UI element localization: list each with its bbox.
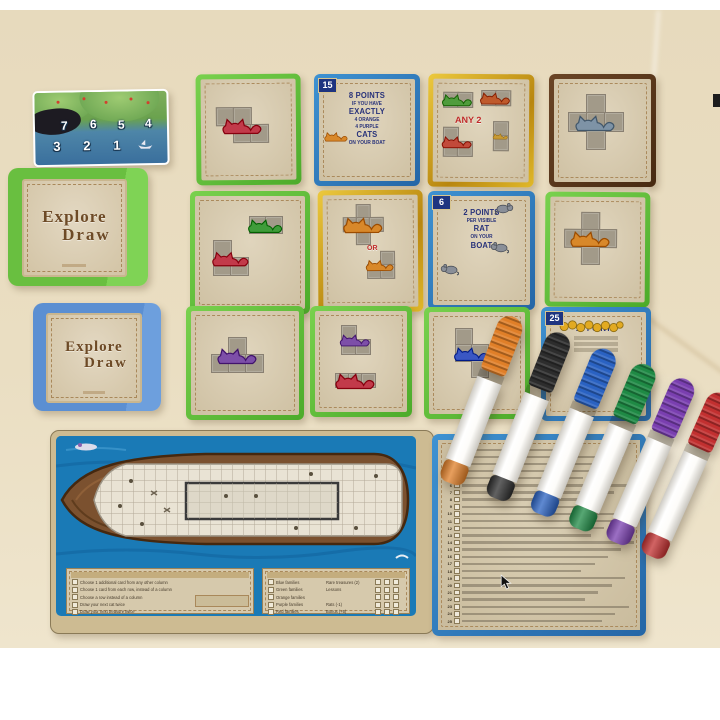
card-keyword: OR bbox=[367, 245, 378, 252]
island-scene: 7 6 5 4 3 2 1 bbox=[34, 91, 167, 165]
cropped-edge-mark bbox=[713, 94, 720, 107]
card-green-domino-red-l bbox=[190, 191, 310, 314]
cat-icon bbox=[364, 254, 395, 274]
photo-background: 7 6 5 4 3 2 1 Explore Draw Explore Draw … bbox=[0, 10, 720, 648]
lesson-row: 20 bbox=[444, 583, 634, 588]
box-title-line1: Explore bbox=[48, 339, 140, 356]
scoring-panel: Blue familiesRare treasures (2)Green fam… bbox=[262, 568, 410, 614]
rat-icon bbox=[489, 240, 509, 254]
card-number: 6 bbox=[432, 195, 451, 210]
coins-icon bbox=[558, 319, 624, 334]
box-label: Explore Draw bbox=[22, 179, 127, 277]
rat-icon bbox=[495, 201, 515, 215]
scoring-row: Purple familiesRats (-1) bbox=[268, 602, 404, 608]
card-number: 25 bbox=[545, 311, 564, 326]
action-row: Choose 1 additional card from any other … bbox=[72, 579, 248, 585]
water-area: Choose 1 additional card from any other … bbox=[56, 436, 416, 616]
day-tracker-card: 7 6 5 4 3 2 1 bbox=[32, 89, 169, 167]
lesson-row: 14 bbox=[444, 540, 634, 545]
scoring-row: Orange families bbox=[268, 594, 404, 600]
card-purple-t bbox=[186, 306, 304, 420]
lesson-row: 11 bbox=[444, 518, 634, 523]
cat-icon bbox=[219, 110, 263, 139]
panel-header bbox=[71, 572, 249, 578]
box-subtitle-mark bbox=[62, 264, 86, 267]
actions-panel: Choose 1 additional card from any other … bbox=[66, 568, 254, 614]
cat-icon bbox=[478, 86, 512, 108]
cat-icon bbox=[492, 130, 509, 141]
lesson-row: 21 bbox=[444, 590, 634, 595]
lesson-row: 23 bbox=[444, 604, 634, 609]
small-boat-icon bbox=[137, 139, 153, 149]
scoring-row: Blue familiesRare treasures (2) bbox=[268, 579, 404, 585]
card-plus-grey bbox=[549, 74, 656, 187]
explore-draw-box-green: Explore Draw bbox=[8, 168, 148, 286]
explore-draw-box-blue: Explore Draw bbox=[33, 303, 161, 411]
mouse-cursor bbox=[500, 574, 512, 590]
lesson-row: 22 bbox=[444, 597, 634, 602]
cat-icon bbox=[338, 328, 372, 350]
day-number: 6 bbox=[90, 117, 97, 131]
lesson-row: 15 bbox=[444, 547, 634, 552]
panel-note bbox=[195, 595, 249, 607]
box-title-line2: Draw bbox=[48, 355, 152, 372]
day-number: 4 bbox=[145, 116, 152, 130]
ship-illustration bbox=[56, 436, 416, 566]
cat-icon bbox=[215, 340, 259, 368]
day-number: 2 bbox=[83, 138, 90, 153]
card-keyword: ANY 2 bbox=[455, 115, 481, 125]
scoring-row: Red familiesBonus (+5) bbox=[268, 609, 404, 615]
lesson-row: 19 bbox=[444, 576, 634, 581]
box-label: Explore Draw bbox=[46, 313, 142, 403]
lesson-row: 17 bbox=[444, 561, 634, 566]
card-number: 15 bbox=[318, 78, 337, 93]
rat-icon bbox=[439, 262, 459, 276]
lesson-row: 16 bbox=[444, 554, 634, 559]
scoring-row: Green familiesLessons bbox=[268, 587, 404, 593]
card-plus-orange bbox=[545, 192, 651, 308]
cat-icon bbox=[246, 212, 284, 237]
day-number: 5 bbox=[118, 118, 125, 132]
cat-icon bbox=[340, 209, 384, 237]
card-15: 158 POINTSIF YOU HAVEEXACTLY4 ORANGE4 PU… bbox=[314, 74, 420, 186]
lesson-row: 24 bbox=[444, 611, 634, 616]
lesson-row: 18 bbox=[444, 568, 634, 573]
cat-icon bbox=[567, 223, 611, 251]
day-number: 1 bbox=[113, 138, 120, 153]
action-row: Choose 1 card from each row, instead of … bbox=[72, 587, 248, 593]
cat-icon bbox=[440, 130, 474, 152]
cat-icon bbox=[323, 127, 349, 144]
card-any2: ANY 2 bbox=[428, 74, 535, 188]
day-number: 3 bbox=[53, 139, 60, 154]
box-title-line2: Draw bbox=[24, 225, 137, 245]
box-subtitle-mark bbox=[83, 391, 105, 394]
card-6-rats: 62 POINTSPER VISIBLERATON YOURBOAT bbox=[428, 191, 535, 310]
card-red-z bbox=[196, 74, 302, 186]
lesson-row: 25 bbox=[444, 618, 634, 623]
action-row: Draw your next treasure twice bbox=[72, 609, 248, 615]
cat-icon bbox=[333, 365, 377, 393]
day-number: 7 bbox=[61, 119, 68, 133]
card-text: 2 POINTSPER VISIBLERATON YOURBOAT bbox=[433, 208, 530, 251]
cat-icon bbox=[573, 107, 617, 135]
card-purple-red bbox=[310, 306, 412, 417]
cat-icon bbox=[440, 88, 474, 110]
ship-player-board: Choose 1 additional card from any other … bbox=[50, 430, 434, 634]
card-or: OR bbox=[318, 190, 424, 313]
panel-header bbox=[267, 572, 405, 578]
cat-icon bbox=[210, 244, 251, 270]
